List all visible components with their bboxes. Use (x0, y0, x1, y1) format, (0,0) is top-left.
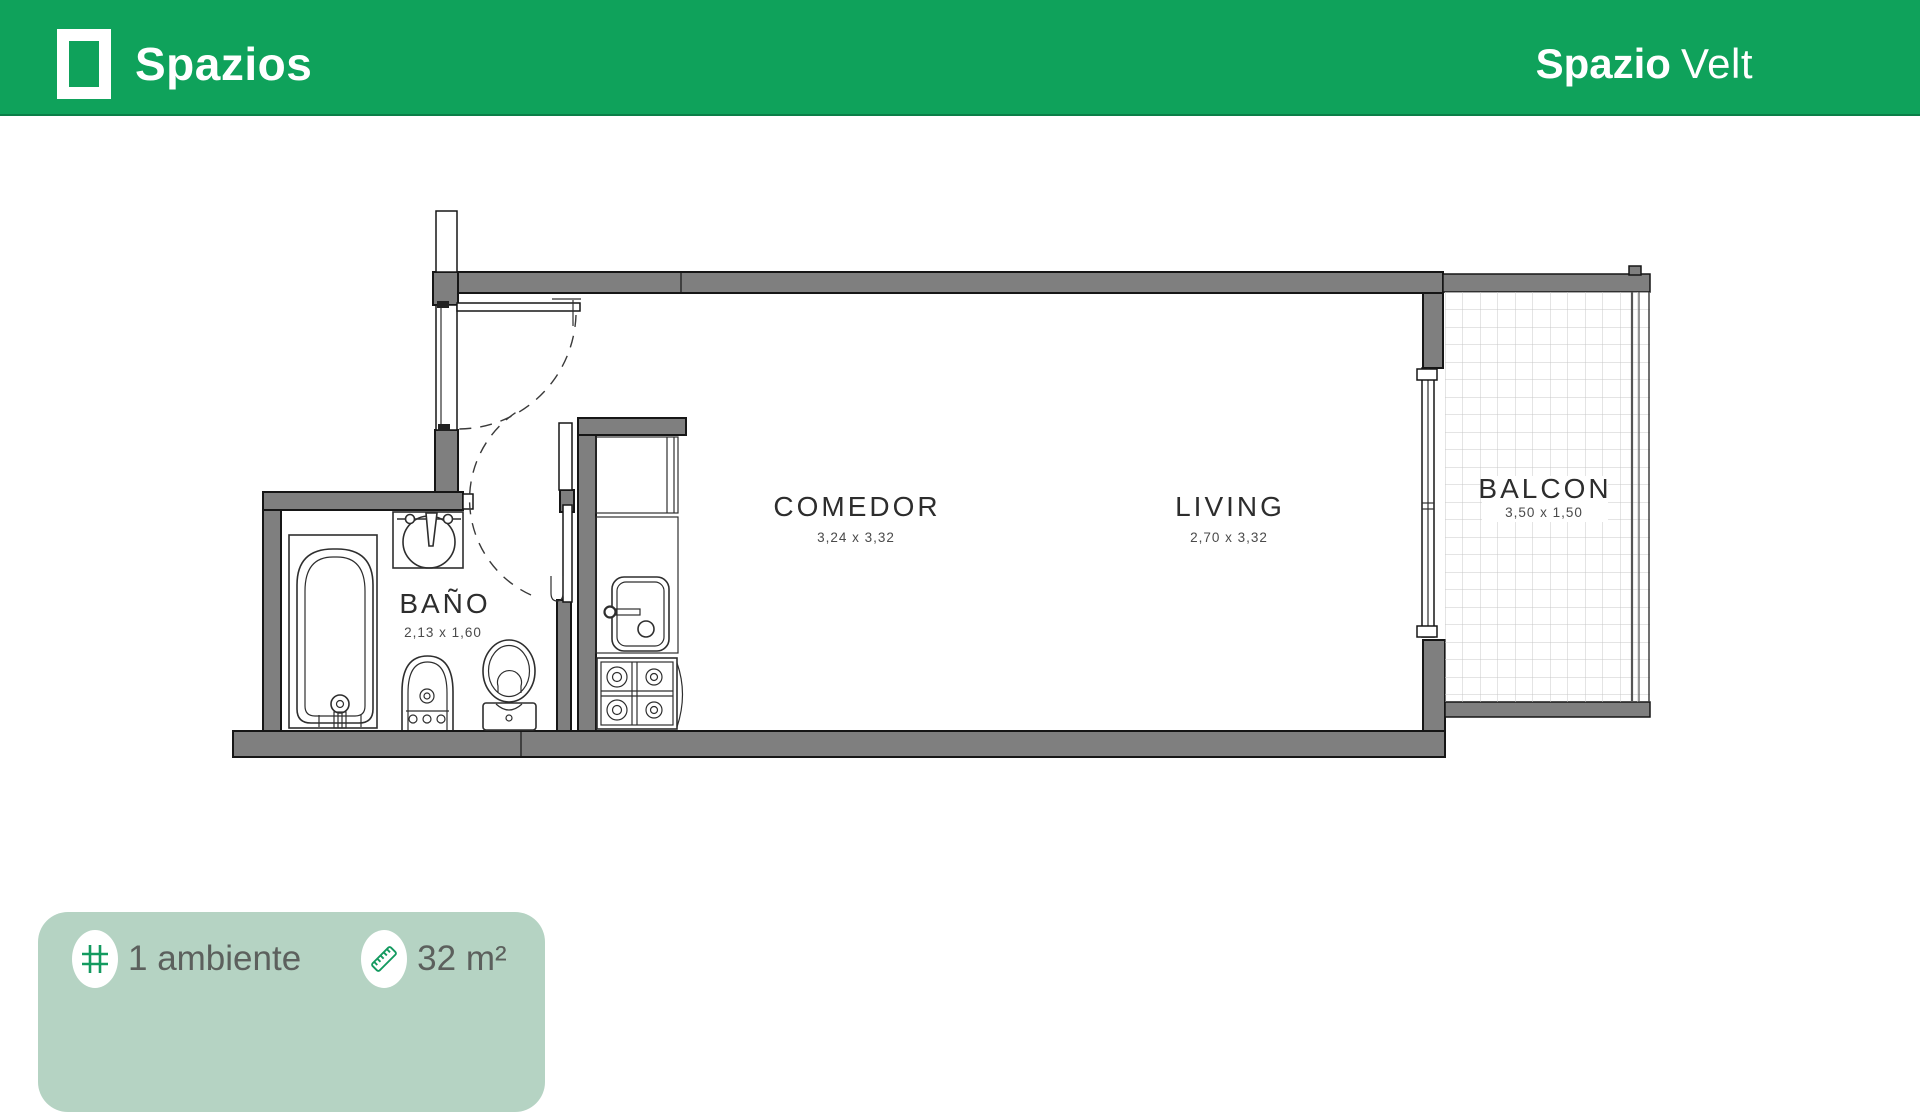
sink-tap-left (406, 515, 415, 524)
bottom-wall (233, 731, 1445, 757)
bathroom-door-leaf (563, 505, 572, 602)
bidet-tap (409, 715, 417, 723)
burner (607, 667, 627, 687)
kitchen-faucet (605, 607, 616, 618)
burner (646, 702, 662, 718)
toilet (483, 640, 536, 730)
room-label-balcon: BALCON (1478, 473, 1611, 504)
bidet-drain-center (424, 693, 430, 699)
area-item: 32 m² (361, 930, 506, 988)
room-label-bano: BAÑO (399, 588, 490, 619)
bidet-inner (408, 662, 447, 730)
summary-badge: 1 ambiente 32 m² (38, 912, 545, 1112)
kitchen-sink-drain (638, 621, 654, 637)
bidet-tap (437, 715, 445, 723)
badge-row: 1 ambiente 32 m² (72, 930, 545, 988)
burner (651, 707, 658, 714)
bathroom-left-wall (263, 492, 281, 731)
ambientes-item: 1 ambiente (72, 930, 301, 988)
kitchen-wall (578, 418, 596, 731)
window-sill-bottom (1417, 626, 1437, 637)
burner (651, 674, 658, 681)
top-wall (433, 272, 1443, 293)
burner (646, 669, 662, 685)
room-dims-living: 2,70 x 3,32 (1190, 530, 1268, 545)
kitchen-top-bar (578, 418, 686, 435)
balcony-bottom-wall (1445, 702, 1650, 717)
kitchen-counter (596, 517, 678, 653)
bathroom-top-wall (263, 492, 463, 510)
toilet-tank (483, 703, 536, 730)
ambientes-label: 1 ambiente (128, 939, 301, 979)
door-handle (551, 576, 563, 601)
hall-left-wall (435, 430, 458, 492)
burner (613, 673, 622, 682)
bidet-tap (423, 715, 431, 723)
burner (607, 700, 627, 720)
bathroom-door-swing-arc (470, 408, 531, 595)
bathroom-sink (393, 512, 463, 568)
sidelight-tick (438, 424, 450, 431)
hall-sidelight (436, 305, 457, 430)
burner (613, 706, 622, 715)
right-wall-upper (1423, 293, 1443, 368)
bathtub (289, 535, 377, 728)
bidet (402, 656, 453, 730)
bathroom-right-wall (557, 600, 571, 731)
room-label-living: LIVING (1175, 491, 1285, 522)
bathroom-door-jamb (463, 494, 473, 509)
balcony-top-wall (1443, 274, 1650, 292)
sidelight-tick (437, 301, 449, 308)
entrance-door-leaf (457, 303, 580, 311)
entrance-door (457, 299, 581, 429)
room-label-comedor: COMEDOR (773, 491, 940, 522)
top-left-corner (433, 272, 458, 305)
sink-tap-right (444, 515, 453, 524)
stove (597, 658, 683, 729)
hall-kitchen-partition (559, 423, 572, 490)
kitchen-faucet-handle (616, 609, 640, 615)
room-dims-comedor: 3,24 x 3,32 (817, 530, 895, 545)
room-dims-balcon: 3,50 x 1,50 (1505, 505, 1583, 520)
ruler-icon (361, 930, 407, 988)
entrance-door-swing-arc (458, 315, 576, 429)
kitchen-closet (596, 437, 678, 513)
kitchen (596, 437, 683, 729)
oven-arc (677, 663, 683, 727)
area-label: 32 m² (417, 939, 506, 979)
bidet-drain (420, 689, 434, 703)
room-dims-bano: 2,13 x 1,60 (404, 625, 482, 640)
exterior-sidelight (436, 211, 457, 272)
bathroom-door (470, 408, 572, 602)
grid-icon (72, 930, 118, 988)
window-sill-top (1417, 369, 1437, 380)
balcony-railing-cap (1629, 266, 1641, 275)
